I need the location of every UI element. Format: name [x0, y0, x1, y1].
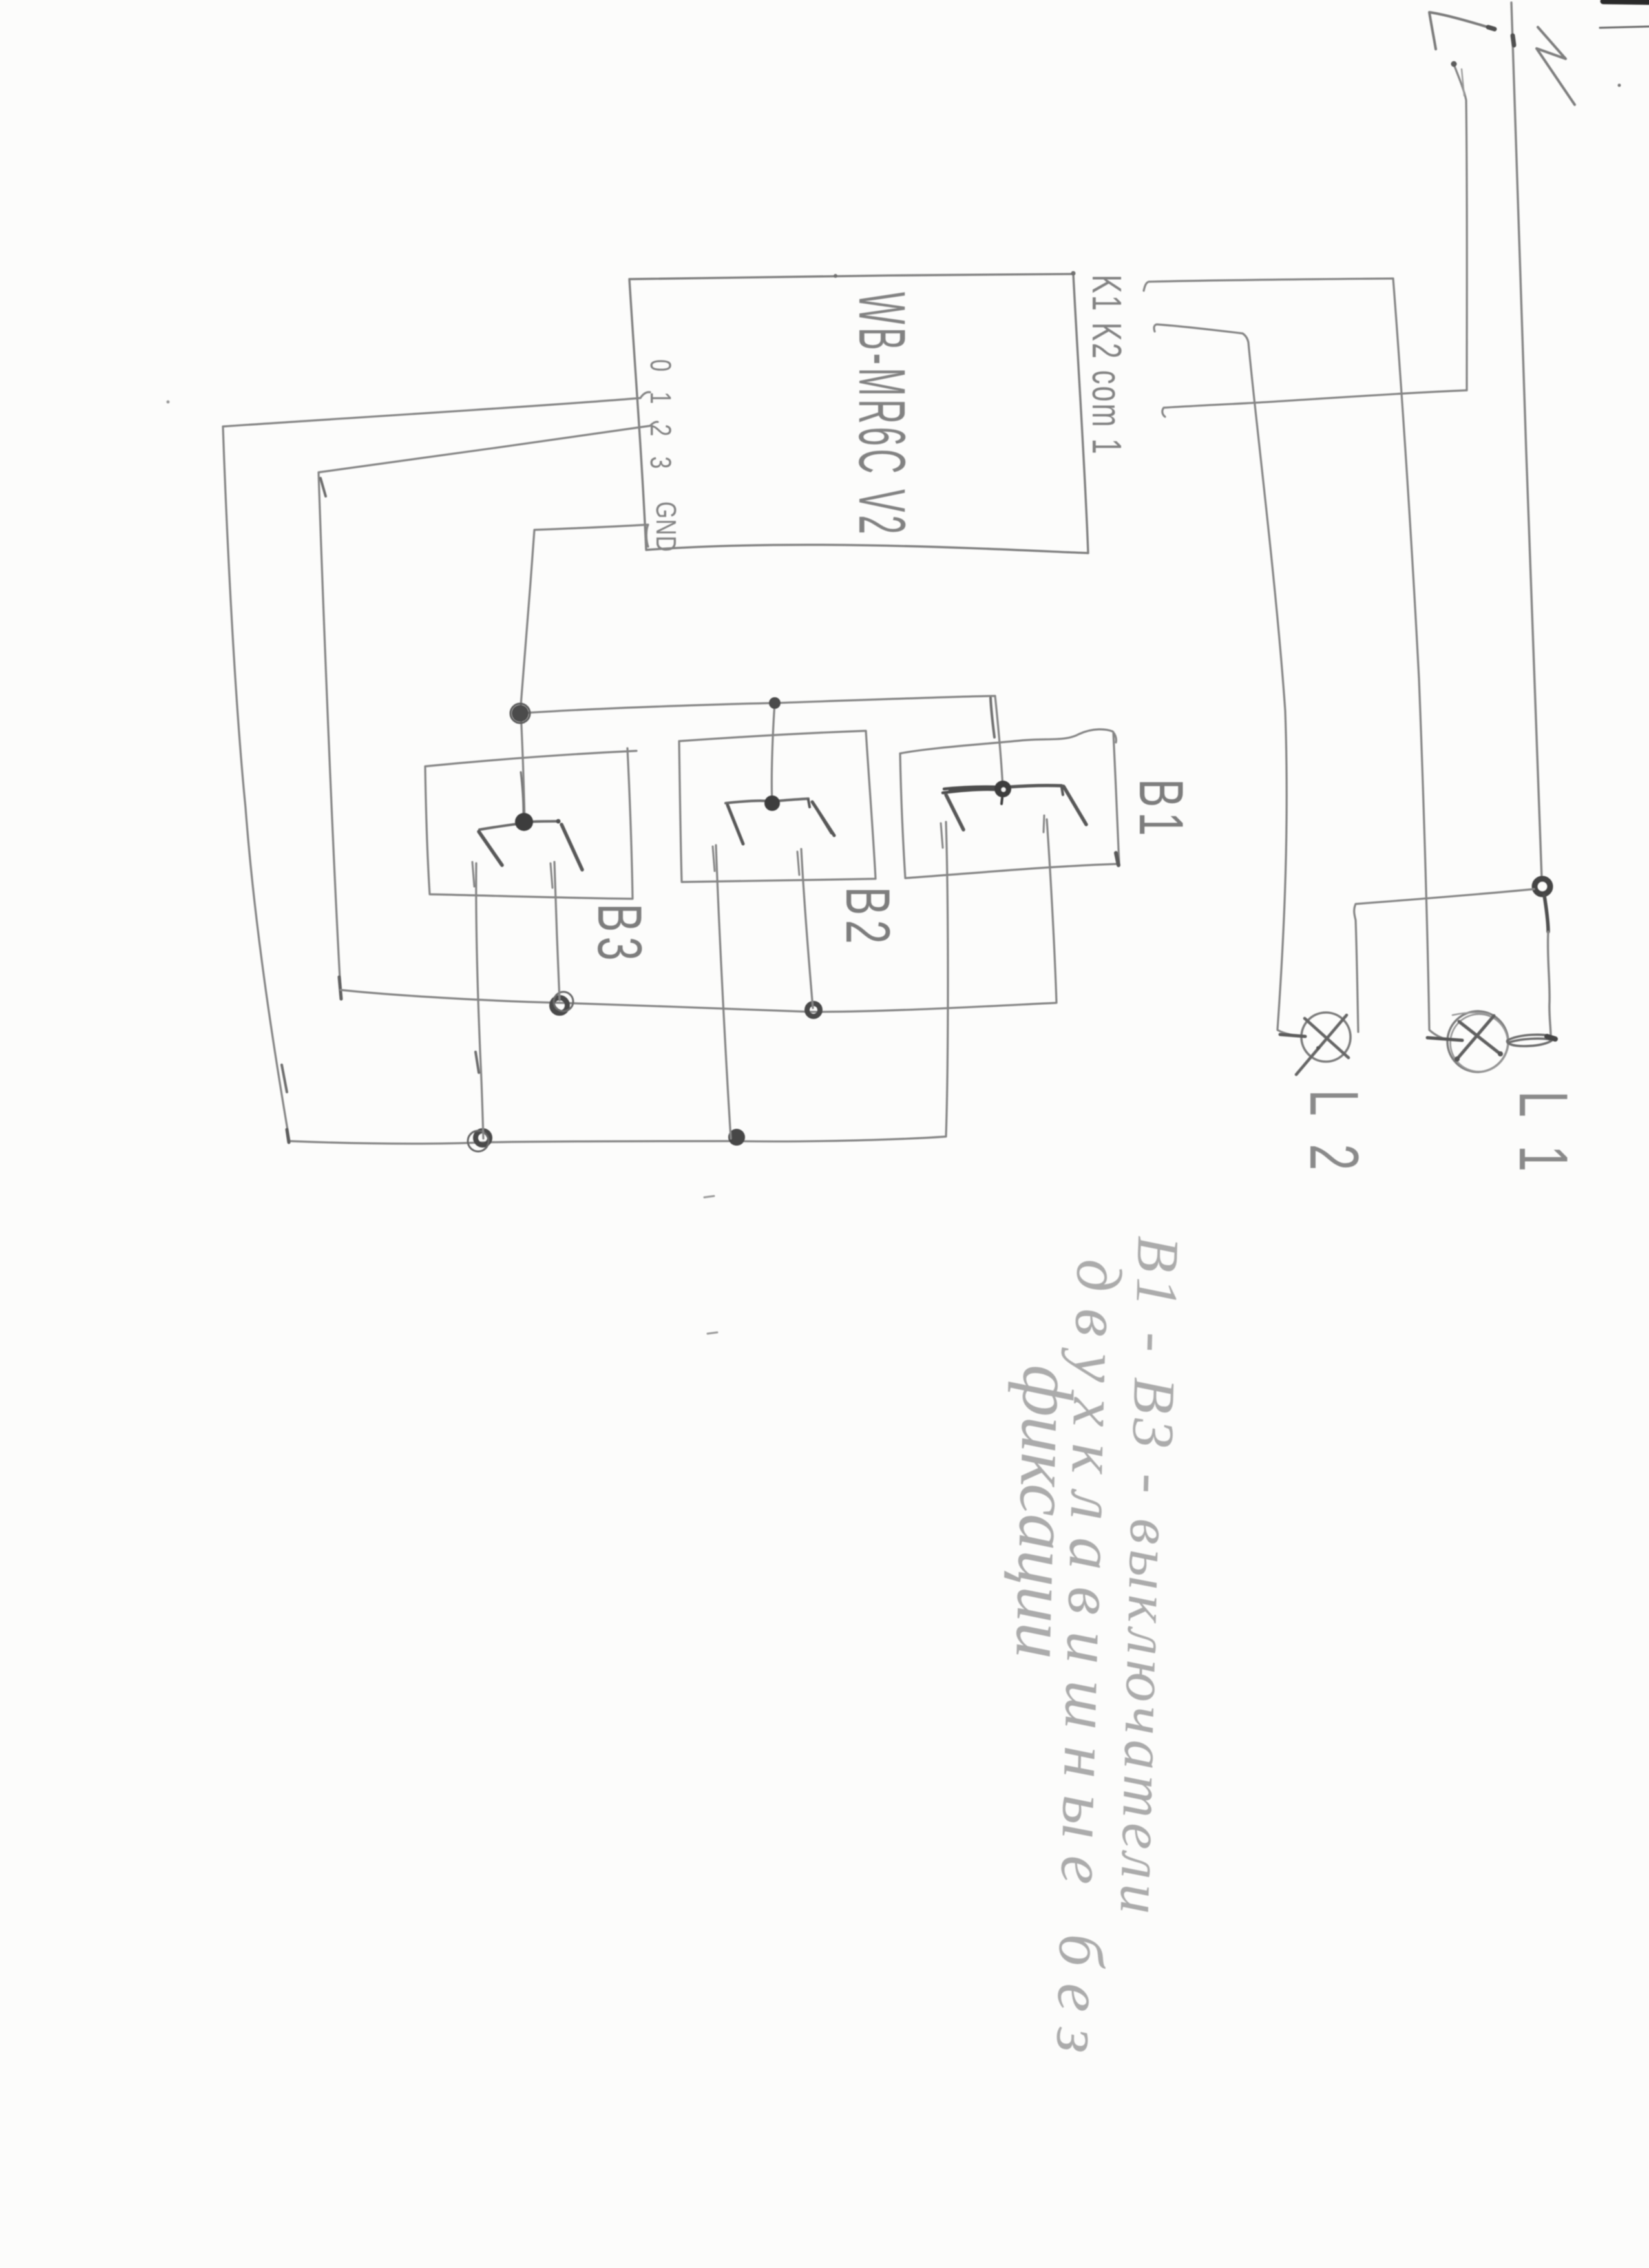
svg-text:фиксации: фиксации — [1000, 1364, 1088, 1660]
svg-text:GND: GND — [650, 501, 682, 552]
svg-text:K1 K2 com 1: K1 K2 com 1 — [1084, 275, 1129, 456]
svg-text:B2: B2 — [833, 887, 903, 949]
svg-text:L1: L1 — [1505, 1091, 1582, 1199]
svg-text:B3: B3 — [585, 903, 655, 965]
svg-text:0 1 2 3: 0 1 2 3 — [644, 359, 677, 476]
svg-text:B1: B1 — [1126, 779, 1196, 841]
svg-text:WB-MR6C V2: WB-MR6C V2 — [845, 292, 918, 537]
svg-text:L2: L2 — [1296, 1089, 1372, 1198]
